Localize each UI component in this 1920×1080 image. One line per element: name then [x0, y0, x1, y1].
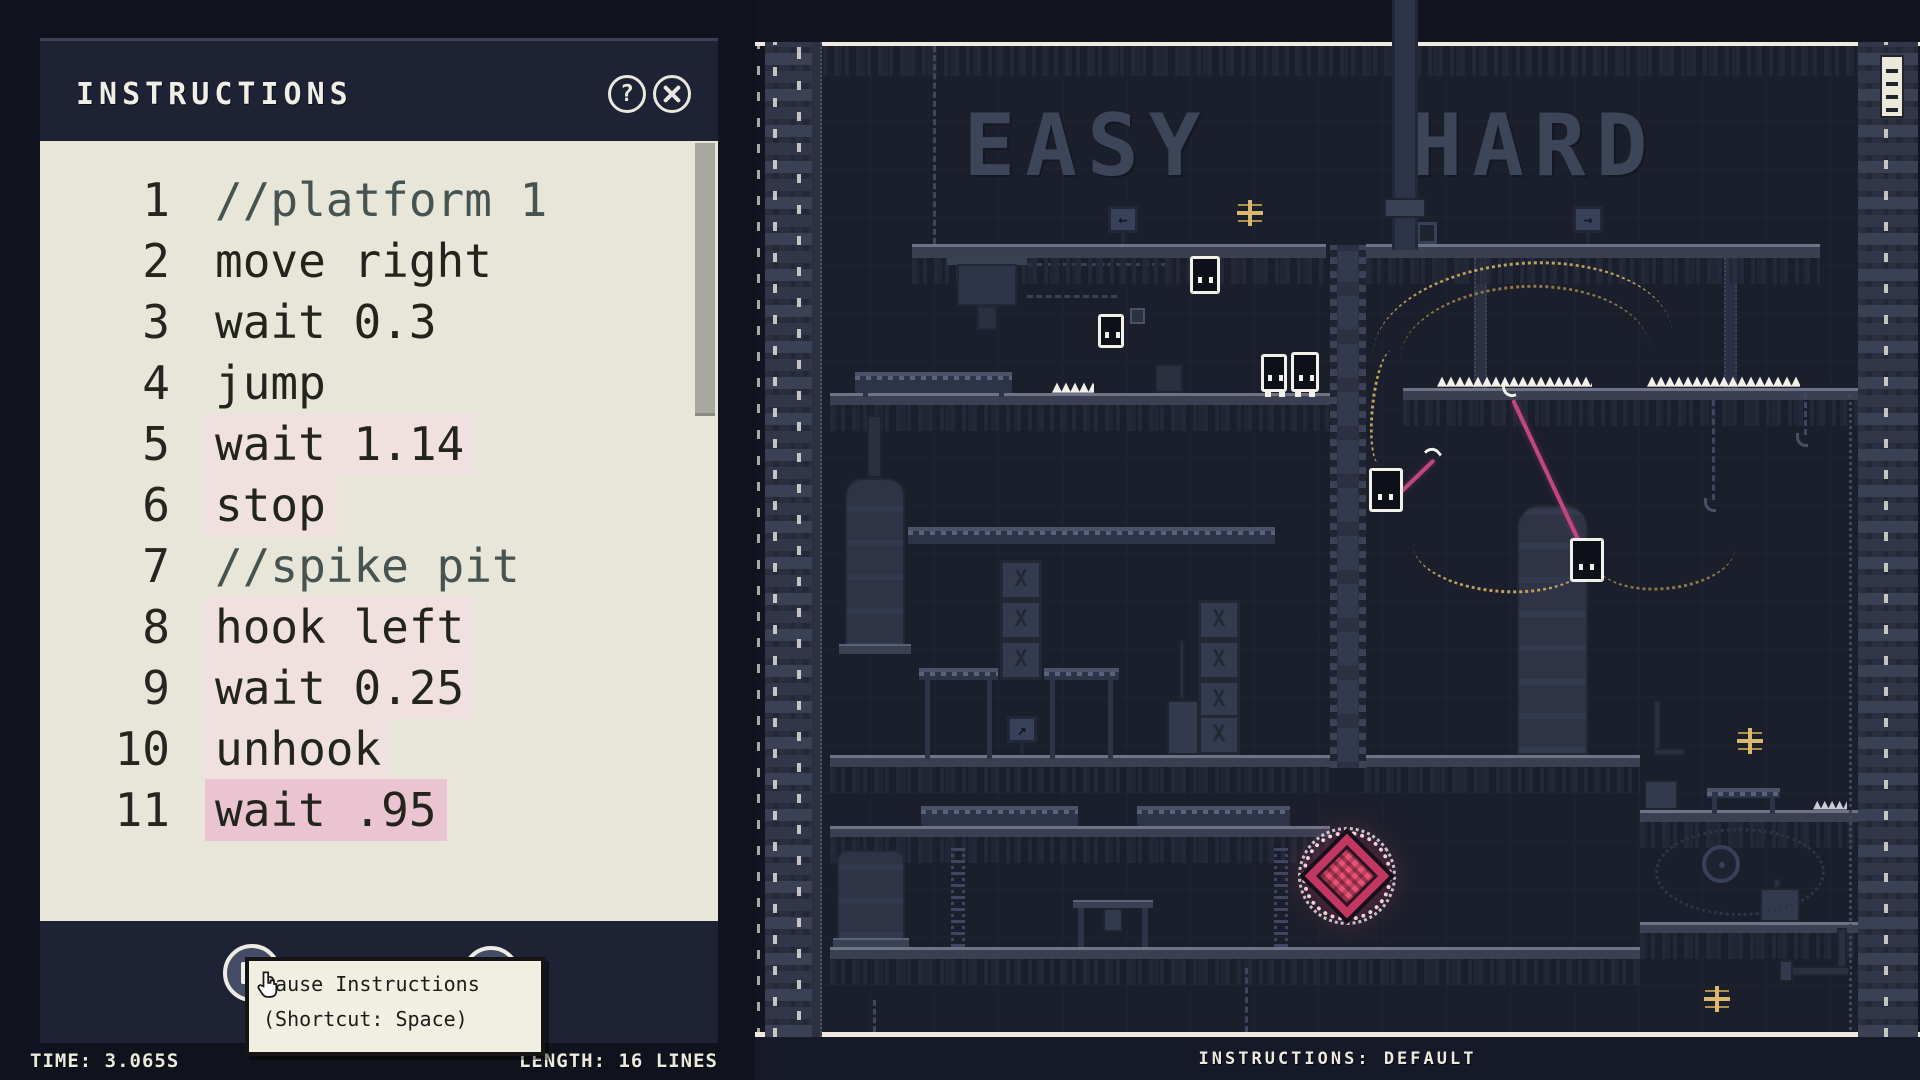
line-number: 2	[40, 234, 170, 288]
right-arrow-sign: →	[1573, 206, 1603, 233]
right-wall-strip	[1858, 42, 1918, 1037]
line-number: 1	[40, 173, 170, 227]
ceiling-chain	[933, 46, 936, 244]
ceiling-texture	[812, 46, 1858, 76]
map-scroll-widget[interactable]	[1880, 55, 1904, 118]
code-line-highlighted[interactable]: 8hook left	[40, 596, 718, 657]
storage-tank	[845, 478, 905, 650]
hanging-chain	[873, 1000, 876, 1032]
background-gear	[1655, 828, 1825, 916]
hopper-machine	[957, 264, 1017, 306]
code-editor[interactable]: 1//platform 1 2move right 3wait 0.3 4jum…	[40, 141, 718, 921]
pump-pipe	[1179, 640, 1185, 700]
help-button[interactable]: ?	[608, 75, 646, 113]
wall-strip-lights	[773, 42, 777, 1037]
up-right-arrow-sign: ↗	[1007, 716, 1037, 743]
line-text: stop	[205, 474, 336, 536]
press-piston	[1103, 908, 1123, 932]
ladder-column	[951, 848, 965, 947]
tooltip-line1: Pause Instructions	[263, 974, 527, 994]
game-viewport[interactable]: EASY HARD ← → ↗	[755, 0, 1920, 1080]
ladder-column	[1274, 848, 1288, 947]
gold-sparkle	[1704, 986, 1730, 1012]
platform	[830, 826, 1330, 837]
code-line-highlighted[interactable]: 6stop	[40, 474, 718, 535]
line-number: 4	[40, 356, 170, 410]
code-line-active[interactable]: 11wait .95	[40, 779, 718, 840]
line-text: wait .95	[205, 779, 447, 841]
platform	[1364, 755, 1640, 767]
settings-button[interactable]	[653, 75, 691, 113]
easy-wall-label: EASY	[963, 96, 1210, 196]
gold-sparkle	[1737, 728, 1763, 754]
crate	[1198, 600, 1240, 640]
center-divider-tower	[1330, 245, 1366, 768]
tooltip-line2: (Shortcut: Space)	[263, 1009, 527, 1029]
line-number: 5	[40, 417, 170, 471]
wire-cable	[1027, 295, 1117, 298]
platform	[830, 947, 1640, 959]
line-text: move right	[205, 230, 502, 292]
pipe	[1653, 700, 1661, 755]
line-text: wait 0.25	[205, 657, 474, 719]
code-line[interactable]: 4jump	[40, 352, 718, 413]
hand-cursor-icon	[255, 970, 279, 1002]
robot-character-swinging	[1570, 538, 1604, 582]
line-text: unhook	[205, 718, 391, 780]
robot-character	[1291, 352, 1319, 392]
tank-chimney	[867, 415, 882, 478]
robot-character	[1098, 314, 1124, 348]
pause-tooltip: Pause Instructions (Shortcut: Space)	[245, 957, 545, 1056]
line-text: wait 0.3	[205, 291, 447, 353]
code-line-highlighted[interactable]: 5wait 1.14	[40, 413, 718, 474]
hard-wall-label: HARD	[1410, 96, 1657, 196]
game-left-border	[757, 42, 760, 1037]
instructions-mode-label: INSTRUCTIONS: DEFAULT	[1199, 1049, 1477, 1069]
conveyor-rail	[921, 806, 1078, 826]
crate	[1000, 640, 1042, 680]
game-status-bar: INSTRUCTIONS: DEFAULT	[755, 1037, 1920, 1080]
tank-base	[839, 644, 911, 654]
pipe-collar	[1384, 198, 1426, 218]
tower-blocks	[1338, 251, 1358, 762]
game-top-border	[755, 42, 1920, 46]
editor-scrollbar-thumb[interactable]	[695, 143, 715, 416]
wall-ticks	[1849, 395, 1852, 1030]
line-text: wait 1.14	[205, 413, 474, 475]
bench-rail	[919, 668, 998, 680]
line-number: 7	[40, 539, 170, 593]
panel-title: INSTRUCTIONS	[76, 77, 353, 112]
wall-frame	[1417, 222, 1437, 244]
line-number: 9	[40, 661, 170, 715]
robot-character	[1261, 354, 1287, 392]
platform	[1640, 810, 1858, 822]
press-machine	[1644, 780, 1678, 810]
line-number: 11	[40, 783, 170, 837]
code-line-highlighted[interactable]: 10unhook	[40, 718, 718, 779]
rail-leg	[863, 393, 868, 397]
wall-edge	[812, 42, 822, 1037]
table-rail	[1707, 788, 1780, 798]
left-wall-strip	[765, 42, 812, 1037]
goal-gem	[1302, 831, 1392, 921]
pipe	[1785, 966, 1850, 976]
crate	[1198, 640, 1240, 680]
rail-leg	[1712, 798, 1717, 814]
robot-character-hooking	[1369, 468, 1403, 512]
line-number: 6	[40, 478, 170, 532]
line-number: 10	[40, 722, 170, 776]
instructions-panel: INSTRUCTIONS ? 1//platform 1 2move right…	[40, 38, 718, 1040]
crate	[1000, 560, 1042, 600]
spikes	[1647, 375, 1800, 388]
platform	[1640, 922, 1858, 933]
spikes	[1813, 799, 1847, 810]
wall-strip-lights	[797, 42, 801, 1037]
rail-leg	[1050, 680, 1055, 759]
hanging-chain	[1712, 400, 1715, 500]
hanging-chain	[1804, 393, 1807, 435]
bench-rail	[1044, 668, 1119, 680]
hanging-box	[1130, 308, 1145, 324]
crate	[1198, 680, 1240, 720]
conveyor-track	[908, 527, 1275, 544]
pump-machine	[1167, 700, 1199, 755]
press-beam	[1073, 900, 1153, 908]
code-rows: 1//platform 1 2move right 3wait 0.3 4jum…	[40, 141, 718, 840]
press-post	[1078, 908, 1084, 947]
line-number: 8	[40, 600, 170, 654]
line-text: hook left	[205, 596, 474, 658]
platform	[830, 755, 1330, 767]
tank-base	[833, 938, 909, 947]
robot-character	[1190, 256, 1220, 294]
question-icon: ?	[620, 81, 634, 107]
code-line[interactable]: 1//platform 1	[40, 169, 718, 230]
code-line[interactable]: 3wait 0.3	[40, 291, 718, 352]
code-line-highlighted[interactable]: 9wait 0.25	[40, 657, 718, 718]
code-line[interactable]: 7//spike pit	[40, 535, 718, 596]
crate	[1000, 600, 1042, 640]
rail-leg	[925, 680, 930, 759]
storage-tank	[837, 850, 905, 940]
left-arrow-sign: ←	[1108, 206, 1138, 233]
line-text: jump	[205, 352, 336, 414]
hopper-machine	[977, 306, 997, 330]
pipe	[1653, 748, 1685, 756]
conveyor-rail	[1137, 806, 1290, 826]
hanging-chain	[1245, 968, 1248, 1032]
crate	[1198, 715, 1240, 755]
line-number: 3	[40, 295, 170, 349]
spikes	[1052, 381, 1094, 394]
line-text: //platform 1	[205, 169, 557, 231]
wall-strip-lights	[1884, 42, 1888, 1037]
gold-sparkle	[1237, 200, 1263, 226]
line-text: //spike pit	[205, 535, 530, 597]
pipe-flange	[1779, 960, 1793, 982]
winch-block	[1155, 364, 1183, 393]
conveyor-rail	[855, 372, 1012, 393]
platform	[1366, 244, 1820, 258]
panel-header: INSTRUCTIONS ?	[40, 41, 718, 141]
time-status: TIME: 3.065S	[30, 1050, 179, 1072]
platform	[830, 393, 1330, 405]
code-line[interactable]: 2move right	[40, 230, 718, 291]
